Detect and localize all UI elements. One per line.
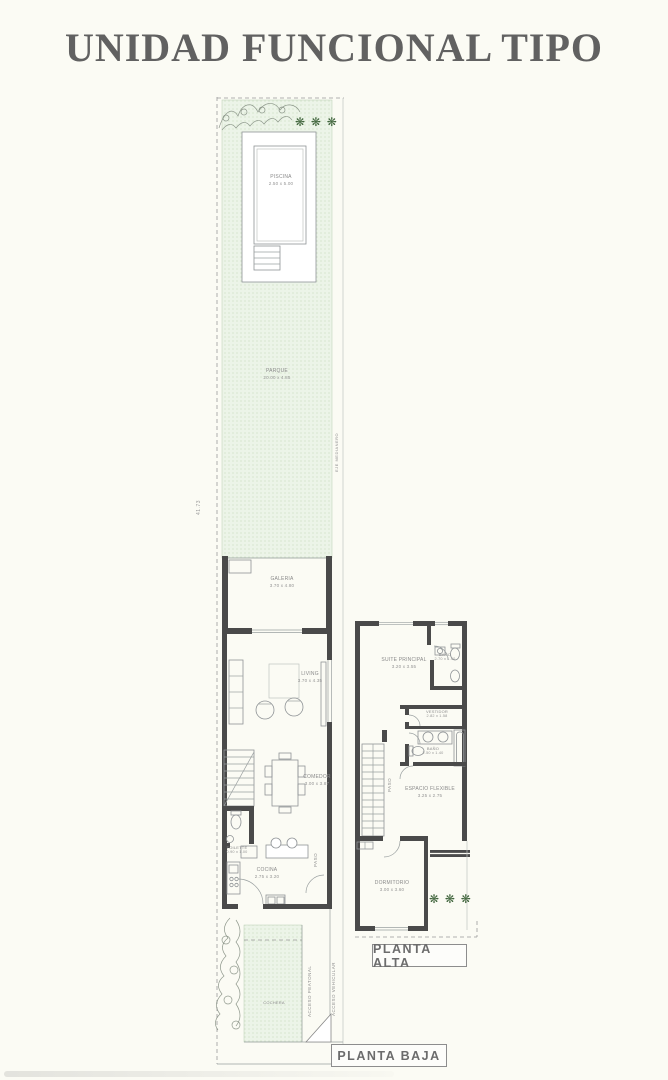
room-label-galeria: GALERIA 3.70 x 4.80 xyxy=(247,576,317,589)
entry-door-arc xyxy=(238,879,263,904)
foliage-bottom xyxy=(215,918,240,1030)
door-arc xyxy=(400,766,413,779)
kitchen-sink xyxy=(229,865,238,873)
room-label-banio-suite: BAÑO 2.70 x 1.40 xyxy=(431,652,459,663)
entry-zone xyxy=(215,909,343,1042)
room-label-cocina: COCINA 2.75 x 3.20 xyxy=(242,867,292,880)
dining-table xyxy=(272,760,298,806)
annotation-paso-baja: PASO xyxy=(313,851,318,869)
room-label-vestidor: VESTIDOR 2.82 x 1.58 xyxy=(410,709,464,720)
floor-plan-sheet: .w{fill:#4a4a4a;} .f{fill:none;stroke:#8… xyxy=(0,0,668,1080)
galeria-structure xyxy=(222,556,332,628)
galeria-bench xyxy=(229,560,251,573)
room-label-espacio-flexible: ESPACIO FLEXIBLE 3.25 x 2.75 xyxy=(398,786,462,799)
tree-icons: ❋ ❋ ❋ xyxy=(295,115,338,129)
room-label-banio: BAÑO 2.50 x 1.40 xyxy=(419,746,447,757)
room-label-toilette: TOILETTE 0.90 x 1.00 xyxy=(220,845,254,856)
room-label-cochera: COCHERA xyxy=(258,1000,290,1005)
driveway-green xyxy=(244,925,302,1042)
pool xyxy=(242,132,316,282)
toilet-tank xyxy=(231,811,241,815)
room-label-parque: PARQUE 20.00 x 4.85 xyxy=(232,368,322,381)
floor-tag-planta-baja: PLANTA BAJA xyxy=(331,1044,447,1067)
room-label-piscina: PISCINA 2.50 x 5.00 xyxy=(254,174,308,187)
stool xyxy=(287,838,297,848)
bidet xyxy=(451,670,460,682)
room-label-living: LIVING 3.70 x 4.35 xyxy=(288,671,332,684)
door-arc xyxy=(306,875,324,893)
room-label-dormitorio: DORMITORIO 3.00 x 3.60 xyxy=(360,880,424,893)
kitchen-island xyxy=(266,845,308,858)
annotation-acceso-peatonal: ACCESO PEATONAL xyxy=(307,962,312,1020)
dimension-total-length: 41.73 xyxy=(196,492,202,522)
scan-artifact xyxy=(4,1071,394,1077)
annotation-paso-alta: PASO xyxy=(387,774,392,796)
toilette-room xyxy=(227,806,255,844)
toilet xyxy=(231,815,241,829)
house-wall-right-lower xyxy=(327,722,332,908)
door-arc xyxy=(384,841,400,857)
living-furniture xyxy=(229,660,326,726)
stairs-alta xyxy=(362,730,387,836)
living-top-wall xyxy=(222,628,332,634)
room-label-comedor: COMEDOR 3.00 x 3.87 xyxy=(296,774,338,787)
floor-tag-planta-alta: PLANTA ALTA xyxy=(372,944,467,967)
annotation-acceso-vehicular: ACCESO VEHICULAR xyxy=(331,956,336,1022)
stool xyxy=(271,838,281,848)
terrace xyxy=(430,841,470,930)
annotation-eje-medianero: EJE MEDIANERO xyxy=(334,424,339,480)
room-label-suite: SUITE PRINCIPAL 3.20 x 3.55 xyxy=(372,657,436,670)
sink xyxy=(423,732,433,742)
plan-linework: .w{fill:#4a4a4a;} .f{fill:none;stroke:#8… xyxy=(0,0,668,1080)
tree-icons: ❋ ❋ ❋ xyxy=(429,892,472,906)
house-wall-right-upper xyxy=(327,634,332,660)
sink xyxy=(227,836,234,843)
sink xyxy=(438,732,448,742)
page-title: UNIDAD FUNCIONAL TIPO xyxy=(0,24,668,71)
alta-wall-right xyxy=(462,621,467,841)
